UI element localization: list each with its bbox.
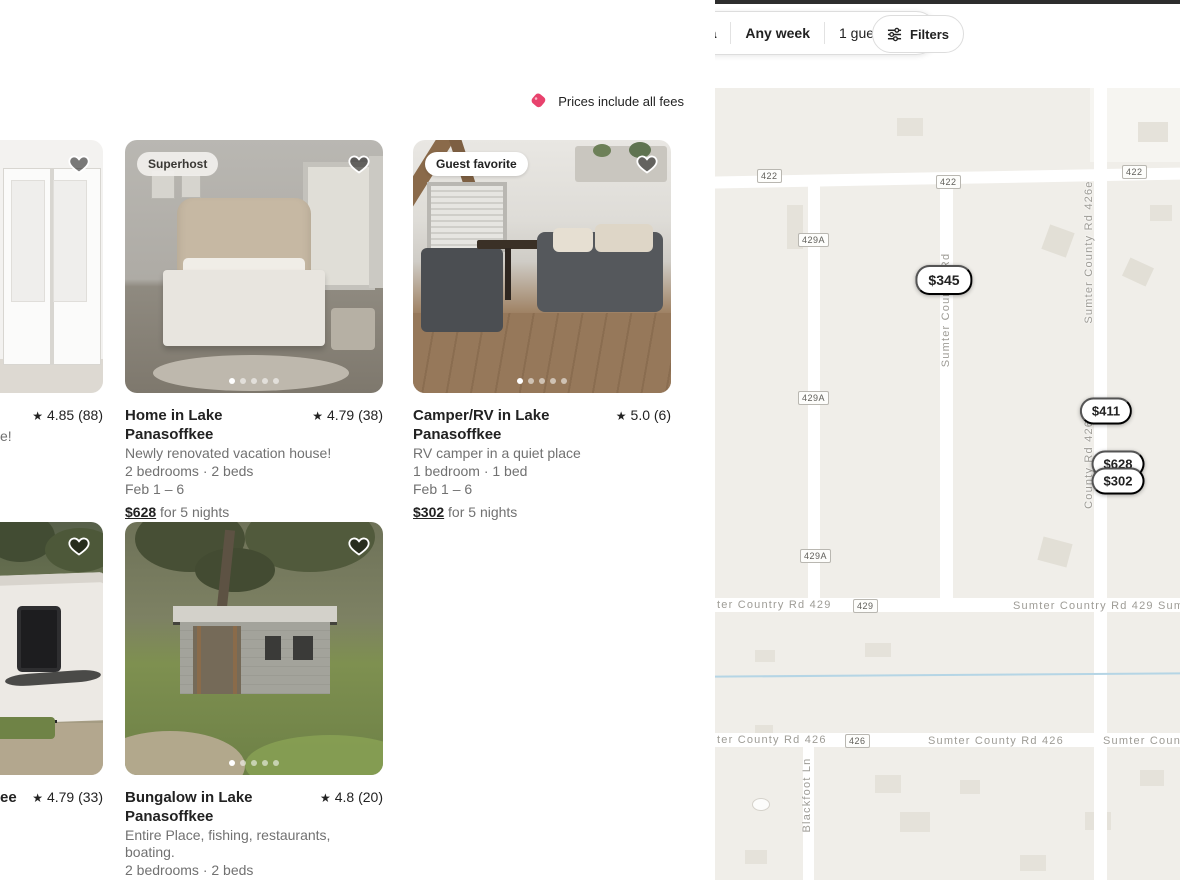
- road-label: Sumter County Rd 426: [928, 735, 1064, 747]
- map-road: [940, 178, 953, 612]
- heart-icon: [67, 152, 91, 176]
- star-icon: ★: [616, 407, 627, 426]
- listing-rating: ★ 4.85 (88): [32, 406, 103, 426]
- guest-favorite-badge: Guest favorite: [425, 152, 528, 176]
- route-shield: 422: [757, 169, 782, 183]
- map-pond: [752, 798, 770, 811]
- favorite-button[interactable]: [347, 152, 371, 176]
- map-price-pin[interactable]: $411: [1080, 398, 1132, 425]
- map[interactable]: 422 429A 422 429A 429A 429 426 422 Sumte…: [715, 88, 1180, 880]
- map-building: [1041, 224, 1074, 257]
- route-shield: 429A: [798, 391, 829, 405]
- listing-price-row: $628 for 5 nights: [125, 504, 383, 521]
- star-icon: ★: [32, 407, 43, 426]
- listing-price: $628: [125, 504, 156, 520]
- price-tag-icon: [528, 91, 549, 111]
- favorite-button[interactable]: [347, 534, 371, 558]
- listing-rating: ★ 4.79 (33): [32, 788, 103, 808]
- listing-subtitle: RV camper in a quiet place: [413, 445, 671, 462]
- listing-dates: Feb 1 – 6: [413, 481, 671, 498]
- listing-title[interactable]: ee: [0, 788, 17, 807]
- map-building: [1150, 205, 1172, 221]
- star-icon: ★: [320, 789, 331, 808]
- map-building: [875, 775, 901, 793]
- map-building: [1140, 770, 1164, 786]
- listing-title[interactable]: Camper/RV in Lake Panasoffkee: [413, 406, 616, 444]
- photo-pagination-dots: [229, 378, 279, 384]
- listing-card[interactable]: Bungalow in Lake Panasoffkee ★ 4.8 (20) …: [125, 522, 383, 880]
- heart-icon: [347, 152, 371, 176]
- road-label: Blackfoot Ln: [801, 758, 813, 833]
- listings-panel: Prices include all fees ★ 4.85 (88) e!: [0, 0, 715, 880]
- road-label: Sumter County Rd 426e: [1083, 180, 1095, 323]
- listing-rating: ★ 5.0 (6): [616, 406, 671, 426]
- listing-price: $302: [413, 504, 444, 520]
- map-building: [865, 643, 891, 657]
- filters-button[interactable]: Filters: [872, 15, 964, 53]
- listing-capacity: 2 bedrooms · 2 beds: [125, 862, 383, 879]
- listing-dates: Feb 1 – 6: [125, 481, 383, 498]
- listing-subtitle: Newly renovated vacation house!: [125, 445, 383, 462]
- listing-subtitle: Entire Place, fishing, restaurants, boat…: [125, 827, 383, 861]
- route-shield: 429A: [798, 233, 829, 247]
- listing-card[interactable]: ee ★ 4.79 (33): [0, 522, 103, 808]
- favorite-button[interactable]: [67, 534, 91, 558]
- map-building: [897, 118, 923, 136]
- route-shield: 422: [936, 175, 961, 189]
- listing-title[interactable]: Home in Lake Panasoffkee: [125, 406, 312, 444]
- map-building: [1020, 855, 1046, 871]
- listing-subtitle: e!: [0, 428, 12, 445]
- listing-photo[interactable]: [0, 522, 103, 775]
- fees-banner: Prices include all fees: [0, 91, 684, 111]
- route-shield: 429A: [800, 549, 831, 563]
- road-label: ter County Rd 426: [717, 734, 827, 746]
- map-stream: [715, 672, 1180, 677]
- map-building: [1138, 122, 1168, 142]
- listing-photo[interactable]: [125, 522, 383, 775]
- favorite-button[interactable]: [635, 152, 659, 176]
- map-building: [1122, 257, 1154, 286]
- route-shield: 429: [853, 599, 878, 613]
- fees-banner-text: Prices include all fees: [558, 94, 684, 109]
- star-icon: ★: [312, 407, 323, 426]
- route-shield: 426: [845, 734, 870, 748]
- road-label: ter Country Rd 429: [717, 599, 832, 611]
- search-dates-button[interactable]: Any week: [731, 12, 824, 54]
- map-building: [1037, 537, 1072, 568]
- heart-icon: [347, 534, 371, 558]
- listing-photo[interactable]: Guest favorite: [413, 140, 671, 393]
- star-icon: ★: [32, 789, 43, 808]
- listing-title[interactable]: Bungalow in Lake Panasoffkee: [125, 788, 320, 826]
- listing-card[interactable]: ★ 4.85 (88) e!: [0, 140, 103, 426]
- filters-icon: [887, 27, 902, 42]
- route-shield: 422: [1122, 165, 1147, 179]
- heart-icon: [67, 534, 91, 558]
- photo-pagination-dots: [229, 760, 279, 766]
- photo-pagination-dots: [517, 378, 567, 384]
- listing-capacity: 2 bedrooms · 2 beds: [125, 463, 383, 480]
- map-price-pin[interactable]: $345: [915, 265, 972, 295]
- filters-label: Filters: [910, 27, 949, 42]
- listing-card[interactable]: Guest favorite Camper/RV in Lake Panasof…: [413, 140, 671, 521]
- map-building: [960, 780, 980, 794]
- road-label: Sumter Country Rd 429 Sum: [1013, 600, 1180, 612]
- listing-card[interactable]: Superhost Home in Lake Panasoffkee ★ 4.7…: [125, 140, 383, 521]
- listing-capacity: 1 bedroom · 1 bed: [413, 463, 671, 480]
- map-building: [755, 650, 775, 662]
- map-price-pin[interactable]: $302: [1092, 468, 1145, 495]
- listing-rating: ★ 4.79 (38): [312, 406, 383, 426]
- listing-photo[interactable]: Superhost: [125, 140, 383, 393]
- listing-price-row: $302 for 5 nights: [413, 504, 671, 521]
- road-label: Sumter Coun: [1103, 735, 1180, 747]
- superhost-badge: Superhost: [137, 152, 218, 176]
- map-building: [745, 850, 767, 864]
- map-building: [900, 812, 930, 832]
- listing-rating: ★ 4.8 (20): [320, 788, 383, 808]
- favorite-button[interactable]: [67, 152, 91, 176]
- heart-icon: [635, 152, 659, 176]
- listing-photo[interactable]: [0, 140, 103, 393]
